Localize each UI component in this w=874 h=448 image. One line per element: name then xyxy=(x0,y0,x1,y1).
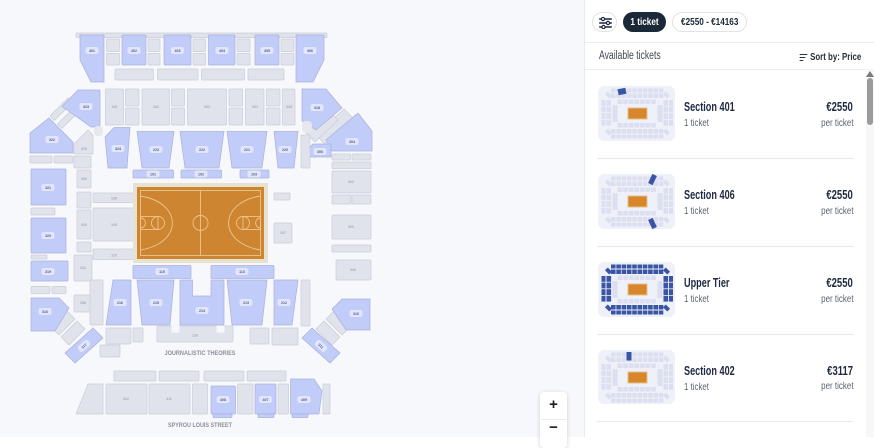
svg-text:107: 107 xyxy=(280,231,286,235)
svg-text:403: 403 xyxy=(175,49,181,53)
svg-text:404: 404 xyxy=(219,49,225,53)
svg-text:323: 323 xyxy=(83,105,89,109)
svg-text:405: 405 xyxy=(264,49,270,53)
svg-text:316: 316 xyxy=(42,310,48,314)
svg-text:120: 120 xyxy=(192,334,198,338)
svg-text:320: 320 xyxy=(350,268,356,272)
svg-text:213: 213 xyxy=(243,301,249,305)
svg-text:109: 109 xyxy=(111,223,117,227)
svg-text:298: 298 xyxy=(80,301,86,305)
svg-text:407: 407 xyxy=(263,398,269,402)
svg-text:319: 319 xyxy=(45,270,51,274)
svg-text:306: 306 xyxy=(317,150,323,154)
svg-text:322: 322 xyxy=(49,138,55,142)
svg-text:220: 220 xyxy=(282,148,288,152)
svg-text:329: 329 xyxy=(81,147,87,151)
svg-text:412: 412 xyxy=(123,397,129,401)
svg-text:214: 214 xyxy=(199,309,205,313)
svg-text:JOURNALISTIC THEORIES: JOURNALISTIC THEORIES xyxy=(165,351,236,357)
svg-text:411: 411 xyxy=(166,397,172,401)
svg-text:310: 310 xyxy=(81,223,87,227)
svg-text:212: 212 xyxy=(281,301,287,305)
svg-text:324: 324 xyxy=(115,147,121,151)
svg-text:318: 318 xyxy=(314,106,320,110)
svg-text:333: 333 xyxy=(204,105,210,109)
svg-text:SPYROU LOUIS STREET: SPYROU LOUIS STREET xyxy=(168,423,232,429)
svg-text:110: 110 xyxy=(111,254,117,258)
svg-text:221: 221 xyxy=(244,148,250,152)
svg-text:113: 113 xyxy=(239,270,245,274)
svg-text:340: 340 xyxy=(112,105,118,109)
svg-text:215: 215 xyxy=(153,301,159,305)
svg-text:108: 108 xyxy=(111,197,117,201)
svg-text:328: 328 xyxy=(286,105,292,109)
svg-text:304: 304 xyxy=(349,140,355,144)
svg-text:341: 341 xyxy=(153,105,159,109)
svg-text:222: 222 xyxy=(199,148,205,152)
svg-text:408: 408 xyxy=(220,398,226,402)
svg-text:406: 406 xyxy=(307,49,313,53)
svg-text:216: 216 xyxy=(117,301,123,305)
svg-text:102: 102 xyxy=(198,173,204,177)
svg-text:402: 402 xyxy=(131,49,137,53)
svg-text:331: 331 xyxy=(252,105,258,109)
svg-text:401: 401 xyxy=(89,49,95,53)
svg-text:103: 103 xyxy=(251,173,257,177)
svg-text:321: 321 xyxy=(45,186,51,190)
svg-text:312: 312 xyxy=(80,266,86,270)
svg-text:223: 223 xyxy=(153,148,159,152)
svg-text:409: 409 xyxy=(301,398,307,402)
svg-text:101: 101 xyxy=(150,173,156,177)
svg-text:300: 300 xyxy=(348,225,354,229)
svg-text:302: 302 xyxy=(348,180,354,184)
svg-text:310: 310 xyxy=(353,312,359,316)
svg-text:330: 330 xyxy=(81,177,87,181)
svg-text:115: 115 xyxy=(159,270,165,274)
svg-text:320: 320 xyxy=(45,234,51,238)
